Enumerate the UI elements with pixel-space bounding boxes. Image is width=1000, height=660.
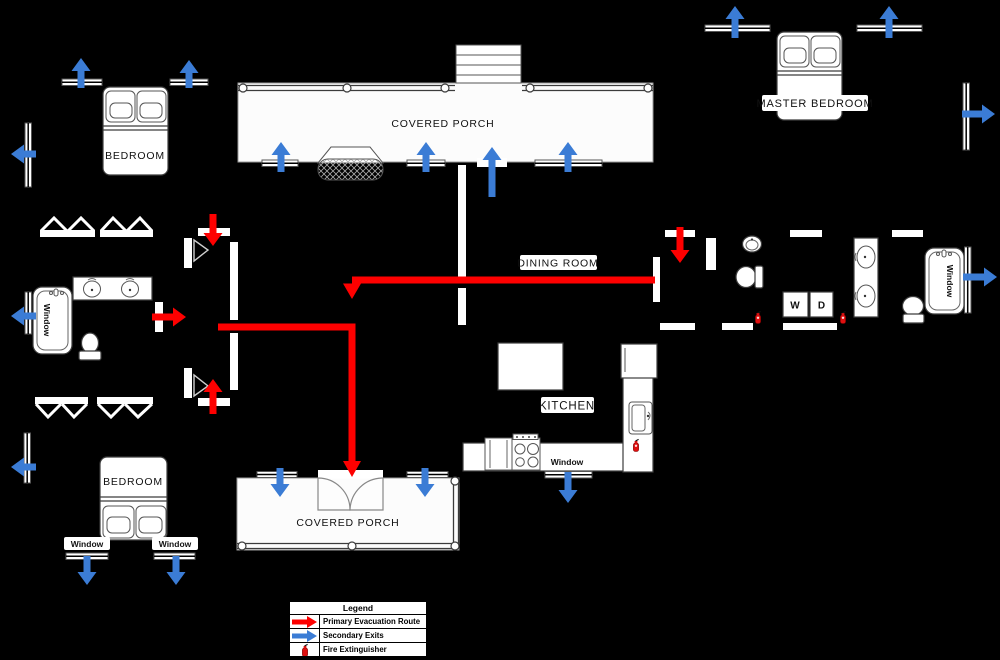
bedroom-window-label: Window (159, 539, 192, 549)
wall-segment (706, 238, 716, 270)
closet-shelf (35, 397, 88, 404)
secondary-exit-arrow (78, 556, 97, 585)
closet-shelf (40, 230, 95, 237)
wall-segment (783, 323, 837, 330)
bathroom-left: Window (25, 277, 152, 360)
porch-fireplace (318, 147, 383, 180)
legend-row-primary: Primary Evacuation Route (290, 615, 426, 629)
stove (512, 434, 540, 470)
legend-row-extinguisher: Fire Extinguisher (290, 643, 426, 656)
bedroom-top-left: BEDROOM (25, 79, 208, 187)
closet-bifold-door (98, 404, 152, 417)
legend: Legend Primary Evacuation Route Secondar… (288, 600, 428, 658)
kitchen: KITCHEN Window (463, 343, 657, 478)
legend-label: Primary Evacuation Route (320, 617, 426, 626)
toilet (903, 297, 925, 324)
bathtub-window-label: Window (42, 304, 52, 337)
dining-room-label: DINING ROOM (517, 258, 598, 270)
bedroom-bottom-label: BEDROOM (103, 476, 163, 488)
bedroom-window-label: Window (71, 539, 104, 549)
master-suite-right: W D Window (660, 230, 971, 330)
wall-segment (892, 230, 923, 237)
washer-label: W (790, 301, 800, 312)
toilet (79, 333, 101, 360)
closet-bifold-door (41, 218, 94, 231)
door-leaf (184, 238, 192, 268)
covered-porch-top-label: COVERED PORCH (391, 118, 494, 130)
vanity-double-sink (73, 277, 152, 300)
railing-post (644, 84, 652, 92)
railing-post (239, 84, 247, 92)
secondary-exit-arrow-icon (290, 629, 320, 642)
master-bedroom-label: MASTER BEDROOM (757, 98, 874, 110)
wall-segment (790, 230, 822, 237)
fire-extinguisher-icon (840, 311, 845, 323)
vanity-double-sink (854, 238, 878, 317)
interior-wall (458, 288, 466, 325)
legend-row-secondary: Secondary Exits (290, 629, 426, 643)
covered-porch-bottom-label: COVERED PORCH (296, 517, 399, 529)
closet-bifold-door (36, 404, 87, 417)
kitchen-window-label: Window (551, 457, 584, 467)
refrigerator (621, 344, 657, 378)
legend-label: Secondary Exits (320, 631, 426, 640)
washer: W (783, 292, 808, 317)
dishwasher (485, 438, 512, 470)
hall-wall (230, 333, 238, 390)
closet-shelf (97, 397, 153, 404)
wall-segment (722, 323, 753, 330)
wall-segment (660, 323, 695, 330)
secondary-exit-arrow (11, 307, 36, 326)
closet-shelf (100, 230, 153, 237)
railing-post (451, 542, 459, 550)
master-bedroom: MASTER BEDROOM (705, 25, 970, 150)
toilet (736, 266, 763, 288)
bedroom-bottom: BEDROOM Window Window (24, 433, 198, 560)
bed (100, 457, 167, 540)
primary-route-line (218, 327, 352, 463)
door-swing (194, 240, 208, 261)
bathtub-window-label: Window (945, 265, 955, 298)
kitchen-label: KITCHEN (539, 401, 595, 413)
kitchen-island (498, 343, 563, 390)
secondary-exit-arrow (880, 6, 899, 38)
porch-stairs (456, 45, 521, 83)
evacuation-floor-plan: COVERED PORCH BEDROOM (0, 0, 1000, 660)
secondary-exit-arrow (11, 145, 36, 164)
door-swing (194, 375, 208, 396)
railing-post (441, 84, 449, 92)
railing-post (526, 84, 534, 92)
bathtub: Window (25, 287, 72, 354)
railing-post (451, 477, 459, 485)
dryer-label: D (818, 301, 825, 312)
primary-route-arrowhead (343, 284, 361, 300)
door-leaf (184, 368, 192, 398)
pedestal-sink (743, 236, 762, 252)
fire-extinguisher-icon (290, 643, 320, 656)
railing-post (348, 542, 356, 550)
railing-post (238, 542, 246, 550)
kitchen-sink (629, 402, 652, 434)
interior-wall (458, 165, 466, 277)
primary-route-arrow-icon (290, 615, 320, 628)
fire-extinguisher-icon (755, 311, 760, 323)
window (24, 433, 31, 483)
bedroom-top-left-label: BEDROOM (105, 150, 165, 162)
legend-label: Fire Extinguisher (320, 645, 426, 654)
hall-wall (230, 242, 238, 320)
dryer: D (810, 292, 833, 317)
secondary-exit-arrow (167, 556, 186, 585)
floor-plan-canvas: COVERED PORCH BEDROOM (0, 0, 1000, 660)
legend-title: Legend (290, 602, 426, 615)
secondary-exit-arrow (11, 458, 36, 477)
secondary-exit-arrow (726, 6, 745, 38)
railing-post (343, 84, 351, 92)
closet-bifold-door (101, 218, 152, 231)
